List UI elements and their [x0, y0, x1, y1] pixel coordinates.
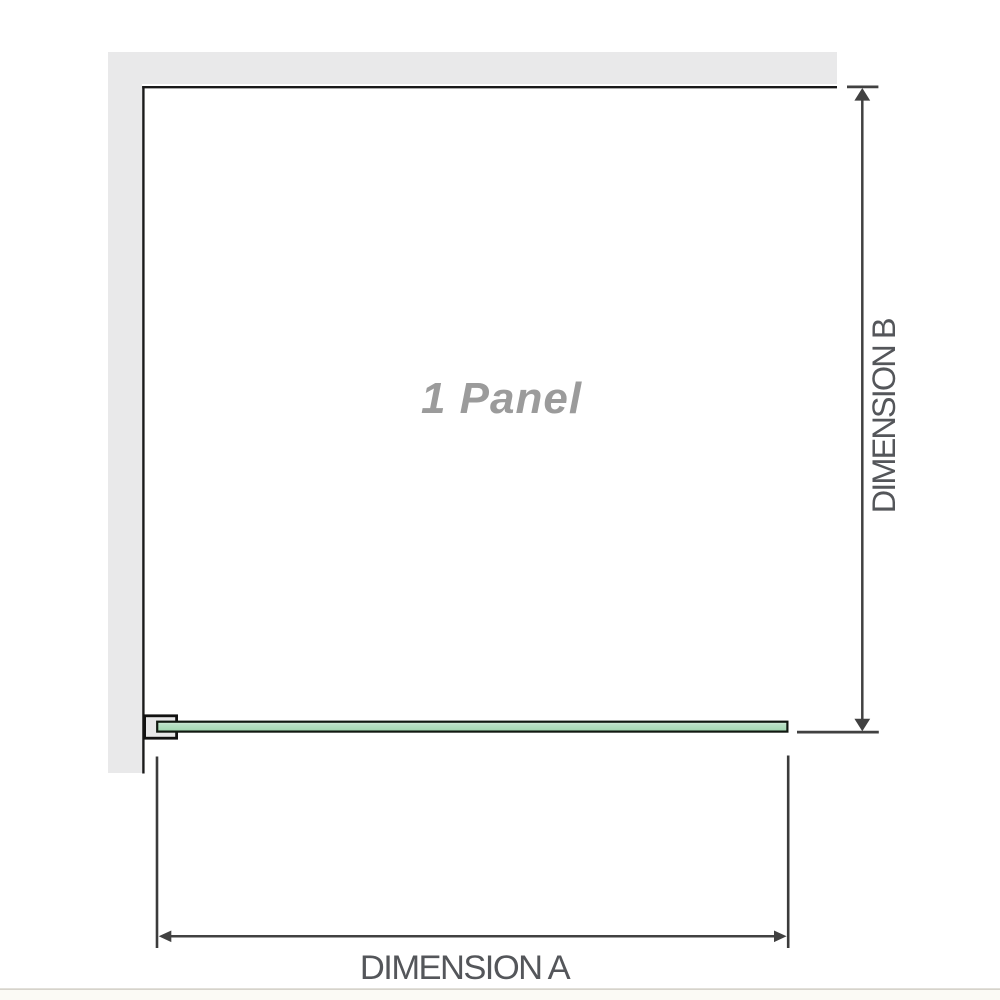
svg-text:DIMENSION B: DIMENSION B	[866, 319, 902, 513]
svg-text:DIMENSION A: DIMENSION A	[360, 949, 571, 987]
svg-text:1 Panel: 1 Panel	[421, 374, 582, 423]
